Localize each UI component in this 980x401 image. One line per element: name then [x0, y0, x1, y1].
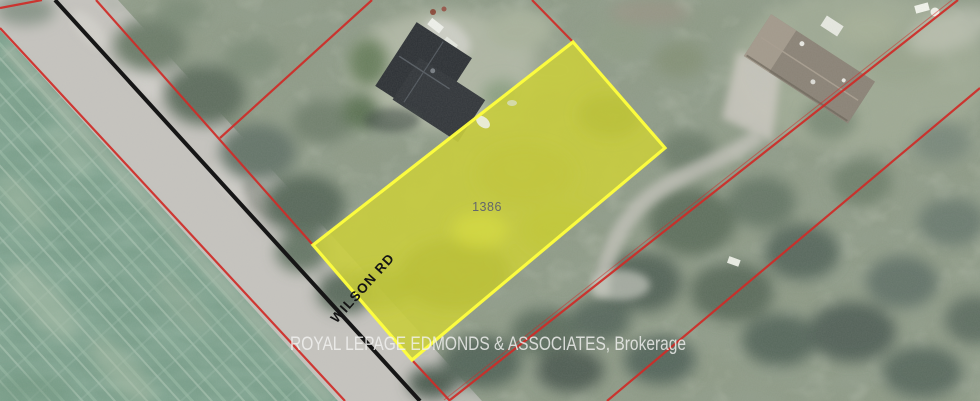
brokerage-watermark: ROYAL LEPAGE EDMONDS & ASSOCIATES, Broke…	[290, 334, 686, 355]
aerial-map-image: 1386 WILSON RD ROYAL LEPAGE EDMONDS & AS…	[0, 0, 980, 401]
aerial-map: 1386 WILSON RD ROYAL LEPAGE EDMONDS & AS…	[0, 0, 980, 401]
parcel-number-label: 1386	[472, 200, 502, 214]
